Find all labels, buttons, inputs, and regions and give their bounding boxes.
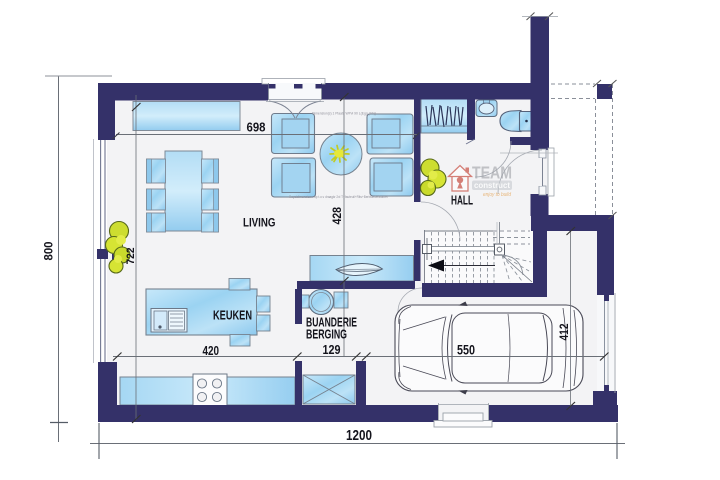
svg-text:LIVING: LIVING: [243, 216, 276, 230]
svg-text:698: 698: [247, 120, 266, 135]
svg-text:722: 722: [125, 248, 137, 265]
svg-text:129: 129: [323, 342, 341, 357]
svg-text:construct: construct: [474, 180, 510, 190]
svg-text:enjoy to build: enjoy to build: [483, 192, 512, 198]
svg-text:HALL: HALL: [451, 194, 473, 208]
svg-text:420: 420: [203, 343, 220, 358]
svg-text:BERGING: BERGING: [306, 328, 347, 342]
svg-text:412: 412: [557, 323, 571, 340]
svg-text:Dimension(s) 1 Plaats WPvl 90: Dimension(s) 1 Plaats WPvl 90 L(Egg (Ah)…: [312, 111, 377, 116]
svg-text:428: 428: [332, 206, 344, 224]
svg-text:550: 550: [457, 343, 475, 358]
svg-text:KEUKEN: KEUKEN: [213, 309, 252, 323]
svg-text:800: 800: [44, 242, 56, 261]
svg-text:1200: 1200: [346, 427, 372, 444]
svg-text:Royaldimensies x op t.o.v draa: Royaldimensies x op t.o.v draagkr 2xl T+…: [289, 194, 389, 199]
